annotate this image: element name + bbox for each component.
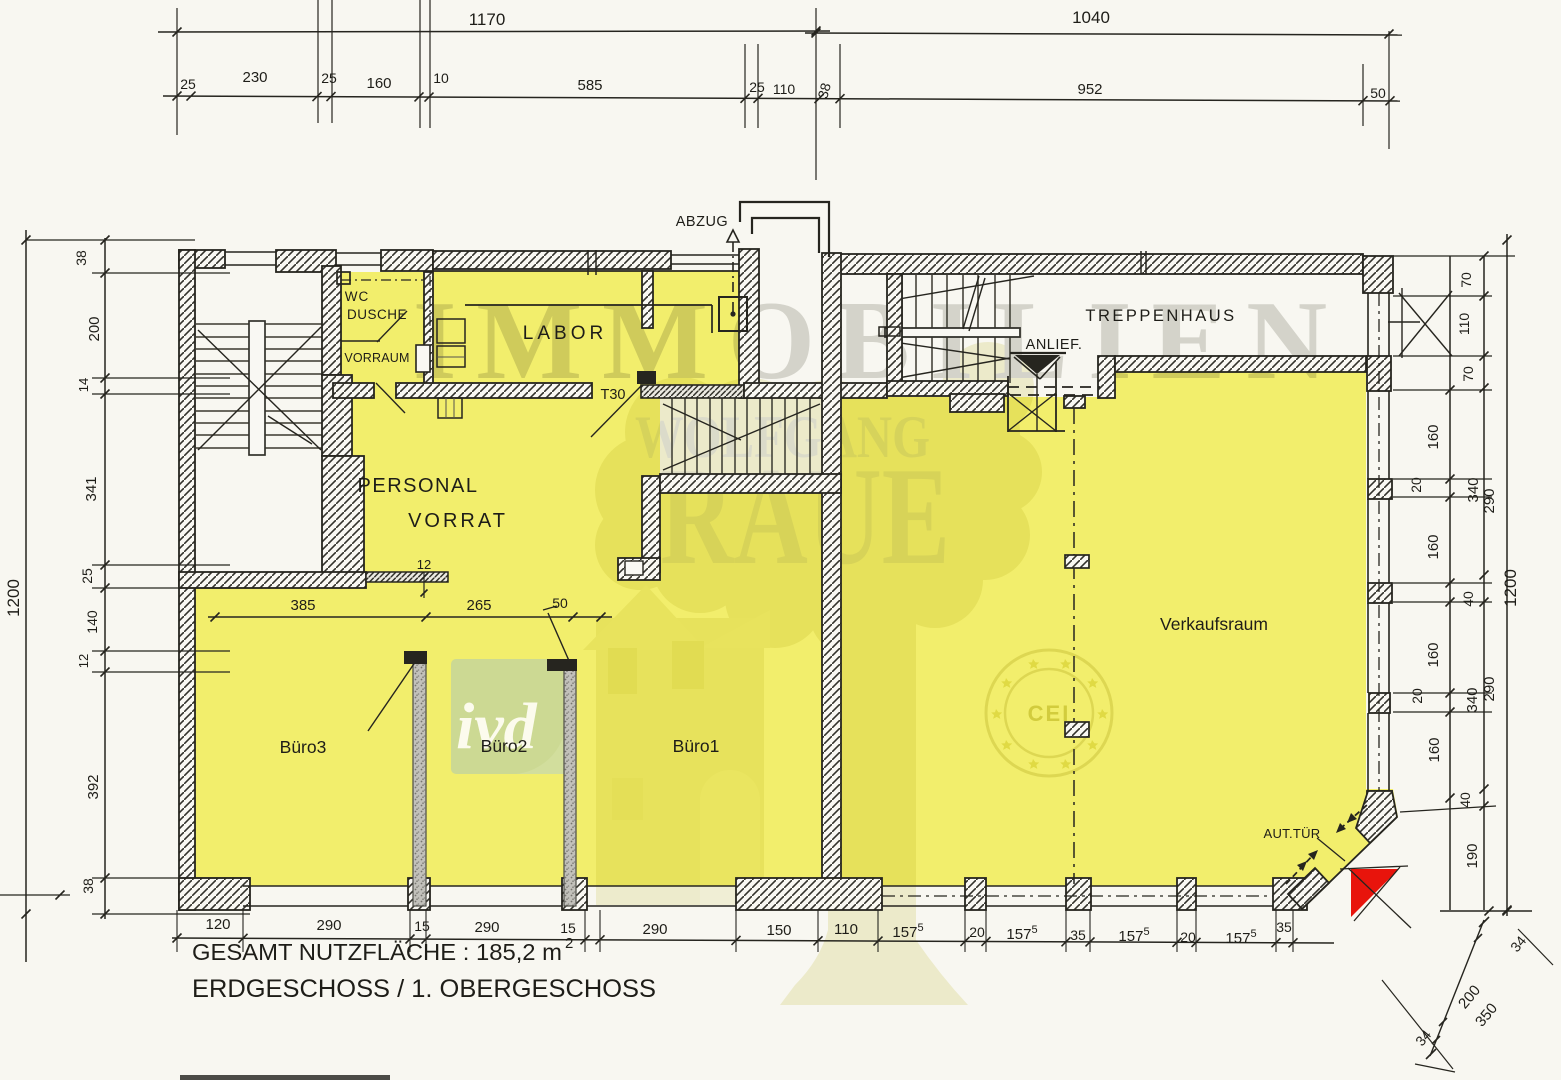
svg-text:35: 35 [1070, 927, 1086, 943]
svg-text:585: 585 [577, 77, 602, 94]
svg-text:ERDGESCHOSS / 1. OBERGESCHOSS: ERDGESCHOSS / 1. OBERGESCHOSS [192, 975, 656, 1003]
svg-text:1200: 1200 [4, 579, 23, 617]
svg-text:160: 160 [1425, 534, 1442, 559]
svg-text:40: 40 [1460, 591, 1476, 607]
svg-text:110: 110 [1456, 313, 1472, 336]
svg-text:ANLIEF.: ANLIEF. [1026, 337, 1083, 353]
svg-text:14: 14 [76, 378, 91, 392]
svg-text:RAUE: RAUE [660, 439, 950, 594]
svg-text:50: 50 [1370, 85, 1386, 101]
svg-text:341: 341 [83, 476, 100, 501]
svg-text:PERSONAL: PERSONAL [358, 475, 479, 497]
svg-text:120: 120 [205, 916, 230, 933]
svg-text:Büro3: Büro3 [280, 737, 327, 757]
svg-text:ABZUG: ABZUG [676, 214, 728, 230]
svg-text:230: 230 [242, 69, 267, 86]
svg-text:290: 290 [642, 921, 667, 938]
svg-text:190: 190 [1464, 843, 1481, 868]
svg-text:150: 150 [766, 922, 791, 939]
svg-text:38: 38 [73, 250, 89, 266]
svg-text:50: 50 [552, 595, 568, 611]
svg-text:160: 160 [1425, 424, 1442, 449]
svg-text:160: 160 [1426, 737, 1443, 762]
svg-text:70: 70 [1458, 272, 1474, 288]
svg-text:200: 200 [86, 316, 103, 341]
svg-text:GESAMT NUTZFLÄCHE : 185,2 m: GESAMT NUTZFLÄCHE : 185,2 m [192, 939, 562, 965]
svg-text:AUT.TÜR: AUT.TÜR [1264, 826, 1321, 841]
svg-text:Büro1: Büro1 [673, 736, 720, 756]
svg-text:TREPPENHAUS: TREPPENHAUS [1085, 307, 1236, 325]
svg-text:12: 12 [76, 654, 91, 668]
svg-text:340: 340 [1464, 687, 1481, 712]
svg-text:38: 38 [80, 878, 96, 894]
svg-text:25: 25 [321, 70, 337, 86]
svg-text:160: 160 [366, 75, 391, 92]
svg-text:Büro2: Büro2 [481, 736, 528, 756]
svg-text:70: 70 [1460, 366, 1476, 382]
svg-text:10: 10 [433, 70, 449, 86]
svg-text:2: 2 [565, 935, 573, 952]
svg-text:25: 25 [79, 568, 95, 584]
svg-text:12: 12 [417, 557, 431, 572]
svg-text:290: 290 [474, 919, 499, 936]
svg-text:290: 290 [1481, 676, 1498, 701]
svg-text:25: 25 [180, 76, 196, 92]
svg-text:VORRAT: VORRAT [408, 510, 508, 532]
svg-text:340: 340 [1465, 477, 1482, 502]
svg-text:Verkaufsraum: Verkaufsraum [1160, 614, 1268, 634]
svg-text:VORRAUM: VORRAUM [344, 351, 409, 365]
svg-text:20: 20 [1409, 688, 1425, 704]
svg-text:DUSCHE: DUSCHE [347, 307, 407, 322]
svg-text:110: 110 [834, 921, 858, 938]
svg-text:110: 110 [773, 81, 796, 97]
svg-text:392: 392 [85, 774, 102, 799]
svg-text:952: 952 [1077, 81, 1102, 98]
svg-text:CEI: CEI [1028, 701, 1071, 726]
svg-text:LABOR: LABOR [523, 323, 607, 344]
svg-text:1170: 1170 [469, 10, 506, 29]
svg-text:1200: 1200 [1501, 569, 1520, 607]
svg-text:40: 40 [1457, 792, 1473, 808]
svg-text:140: 140 [84, 610, 100, 634]
svg-text:385: 385 [290, 597, 315, 614]
svg-text:T30: T30 [601, 387, 626, 403]
svg-text:290: 290 [1481, 488, 1498, 513]
svg-text:15: 15 [560, 920, 576, 936]
svg-text:160: 160 [1425, 642, 1442, 667]
svg-text:20: 20 [969, 924, 985, 940]
svg-text:20: 20 [1180, 929, 1196, 945]
svg-text:25: 25 [749, 79, 765, 95]
svg-text:290: 290 [316, 917, 341, 934]
svg-text:WC: WC [345, 289, 370, 304]
svg-text:265: 265 [466, 597, 491, 614]
svg-text:1040: 1040 [1072, 8, 1110, 27]
svg-text:15: 15 [414, 918, 430, 934]
svg-text:35: 35 [1276, 919, 1292, 935]
